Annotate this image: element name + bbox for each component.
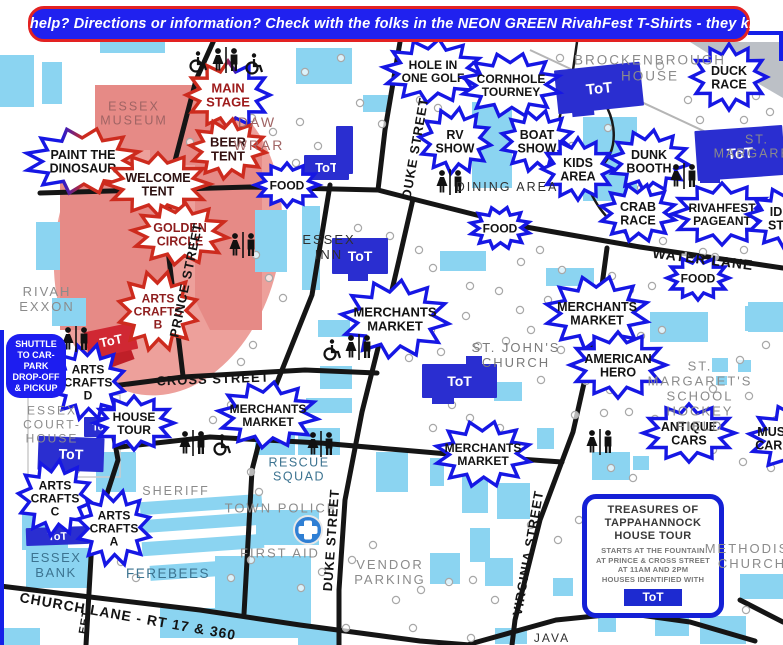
- badge-food-2: FOOD: [471, 208, 529, 249]
- svg-text:MARKET: MARKET: [570, 313, 624, 327]
- svg-text:TOURNEY: TOURNEY: [482, 85, 540, 99]
- svg-text:BOAT: BOAT: [520, 128, 555, 142]
- svg-text:CRAFTS: CRAFTS: [90, 521, 139, 535]
- svg-text:MERCHANTS: MERCHANTS: [557, 300, 637, 314]
- svg-text:ToT: ToT: [58, 446, 84, 463]
- badge-food-3: FOOD: [667, 256, 729, 300]
- tot-st-margarets: ToT: [694, 125, 783, 181]
- svg-text:MARKET: MARKET: [367, 319, 423, 334]
- svg-text:TENT: TENT: [142, 184, 175, 198]
- house-tour-info-box: TREASURES OFTAPPAHANNOCKHOUSE TOUR START…: [582, 494, 724, 618]
- tot-essex-inn: ToT: [332, 238, 388, 274]
- svg-text:HOUSE: HOUSE: [113, 410, 156, 424]
- svg-text:B: B: [154, 317, 163, 331]
- svg-text:CIRCLE: CIRCLE: [157, 234, 204, 248]
- svg-text:HERO: HERO: [600, 365, 636, 379]
- svg-text:ToT: ToT: [348, 248, 373, 264]
- house-tour-body: STARTS AT THE FOUNTAINAT PRINCE & CROSS …: [589, 546, 717, 584]
- svg-text:CRAFTS: CRAFTS: [64, 375, 113, 389]
- tot-brockenbrough: ToT: [554, 62, 644, 115]
- restroom-icon: [587, 429, 612, 455]
- svg-text:RV: RV: [446, 128, 464, 142]
- help-banner: Need help? Directions or information? Ch…: [28, 6, 750, 42]
- svg-text:FOOD: FOOD: [483, 221, 518, 235]
- svg-text:AMERICAN: AMERICAN: [584, 352, 651, 366]
- svg-text:ARTS: ARTS: [98, 508, 131, 522]
- svg-text:DUCK: DUCK: [711, 64, 747, 78]
- svg-text:ST: ST: [768, 218, 783, 232]
- svg-text:BOOTH: BOOTH: [626, 161, 671, 175]
- svg-text:A: A: [110, 534, 119, 548]
- badge-merchants-market-1: MERCHANTSMARKET: [341, 280, 448, 357]
- badge-antique-cars: ANTIQUECARS: [643, 404, 735, 462]
- svg-text:ToT: ToT: [315, 160, 338, 175]
- svg-text:TENT: TENT: [211, 149, 245, 164]
- svg-text:FOOD: FOOD: [270, 178, 305, 192]
- badge-arts-crafts-b: ARTSCRAFTSB: [119, 272, 197, 350]
- svg-text:RIVAHFEST: RIVAHFEST: [688, 201, 756, 215]
- svg-text:CAR C: CAR C: [755, 438, 783, 452]
- svg-text:KIDS: KIDS: [563, 156, 593, 170]
- svg-text:CORNHOLE: CORNHOLE: [477, 72, 546, 86]
- svg-text:FOOD: FOOD: [681, 271, 716, 285]
- svg-text:GOLDEN: GOLDEN: [153, 221, 206, 235]
- svg-text:ToT: ToT: [447, 373, 472, 389]
- svg-text:ARTS: ARTS: [72, 362, 105, 376]
- tot-badge: ToT: [624, 589, 682, 606]
- restroom-icon: [346, 334, 371, 360]
- svg-text:RACE: RACE: [711, 77, 746, 91]
- badge-crab-race: CRABRACE: [601, 185, 675, 241]
- festival-map: ToTToTToTToTToTToTToTToTToT MAINSTAGEBEE…: [0, 0, 783, 645]
- svg-text:D: D: [84, 388, 93, 402]
- house-tour-title: TREASURES OFTAPPAHANNOCKHOUSE TOUR: [589, 504, 717, 543]
- badge-cornhole-tourney: CORNHOLETOURNEY: [462, 54, 559, 116]
- shuttle-info-text: SHUTTLETO CAR-PARKDROP-OFF& PICKUP: [13, 339, 60, 394]
- svg-text:AREA: AREA: [560, 169, 595, 183]
- svg-text:MARKET: MARKET: [242, 415, 294, 429]
- svg-text:ARTS: ARTS: [39, 478, 72, 492]
- help-banner-text: Need help? Directions or information? Ch…: [0, 16, 783, 32]
- svg-text:CRAB: CRAB: [620, 200, 656, 214]
- svg-text:MERCHANTS: MERCHANTS: [353, 305, 436, 320]
- svg-text:TOUR: TOUR: [117, 423, 151, 437]
- svg-text:C: C: [51, 504, 60, 518]
- first-aid-icon: [294, 516, 322, 544]
- svg-text:MAIN: MAIN: [211, 81, 244, 96]
- svg-text:BEER: BEER: [210, 135, 247, 150]
- svg-text:MARKET: MARKET: [457, 454, 509, 468]
- svg-text:ARTS: ARTS: [142, 291, 175, 305]
- svg-text:PAGEANT: PAGEANT: [693, 214, 751, 228]
- svg-text:STAGE: STAGE: [206, 95, 250, 110]
- svg-text:ID: ID: [770, 205, 783, 219]
- svg-text:SHOW: SHOW: [436, 141, 475, 155]
- svg-text:DINOSAUR: DINOSAUR: [50, 161, 117, 175]
- svg-text:ToT: ToT: [726, 144, 753, 163]
- svg-text:RACE: RACE: [620, 213, 655, 227]
- building-duke-blue: [336, 126, 353, 174]
- badge-arts-crafts-a: ARTSCRAFTSA: [78, 491, 150, 565]
- svg-text:WELCOME: WELCOME: [125, 171, 190, 185]
- svg-text:MERCHANTS: MERCHANTS: [230, 402, 307, 416]
- badge-merchants-market-4: MERCHANTSMARKET: [436, 422, 529, 486]
- shuttle-info-box: SHUTTLETO CAR-PARKDROP-OFF& PICKUP: [6, 334, 66, 398]
- svg-text:MUST: MUST: [757, 425, 783, 439]
- svg-text:CARS: CARS: [671, 433, 706, 447]
- svg-text:ToT: ToT: [585, 79, 613, 99]
- svg-text:DUNK: DUNK: [631, 148, 667, 162]
- svg-text:ONE GOLF: ONE GOLF: [402, 71, 465, 85]
- wheelchair-icon: [325, 339, 341, 359]
- svg-text:HOLE IN: HOLE IN: [409, 58, 458, 72]
- svg-text:PAINT THE: PAINT THE: [50, 148, 115, 162]
- svg-text:ANTIQUE: ANTIQUE: [661, 420, 717, 434]
- badge-must-car: MUSTCAR C: [749, 404, 783, 472]
- svg-text:MERCHANTS: MERCHANTS: [445, 441, 522, 455]
- svg-text:CRAFTS: CRAFTS: [134, 304, 183, 318]
- tot-st-johns: ToT: [422, 364, 497, 398]
- restroom-icon: [180, 430, 205, 456]
- badge-id-st: IDST: [747, 187, 783, 249]
- svg-text:CRAFTS: CRAFTS: [31, 491, 80, 505]
